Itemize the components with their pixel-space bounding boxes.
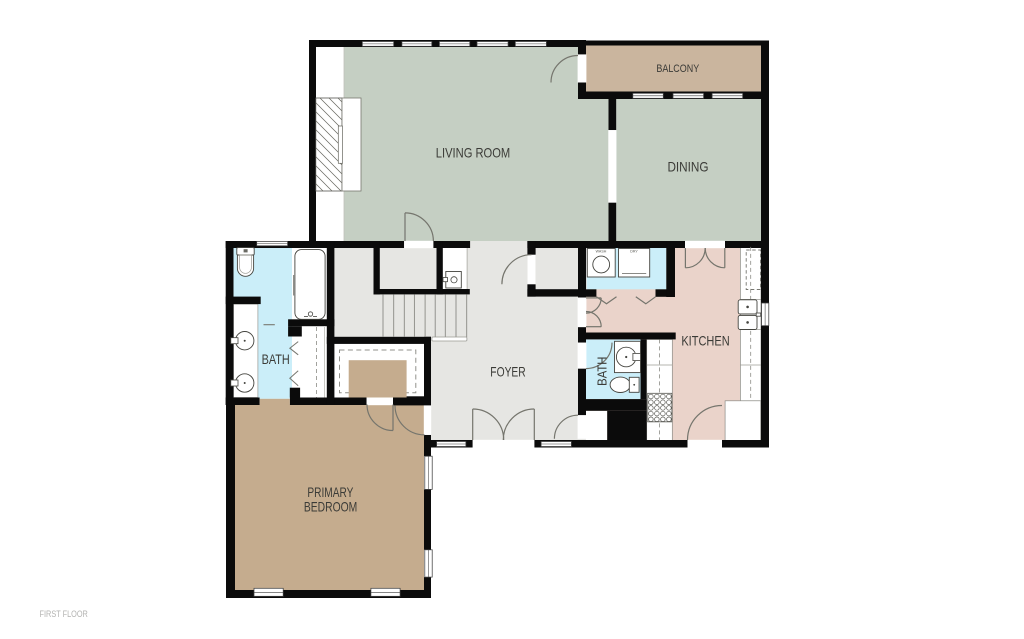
svg-text:FIRST FLOOR: FIRST FLOOR xyxy=(40,609,89,619)
svg-text:BALCONY: BALCONY xyxy=(656,63,699,75)
svg-text:BEDROOM: BEDROOM xyxy=(304,500,357,515)
svg-text:KITCHEN: KITCHEN xyxy=(681,333,729,348)
svg-text:WASH: WASH xyxy=(596,249,607,253)
svg-text:PRIMARY: PRIMARY xyxy=(307,485,353,500)
svg-text:FOYER: FOYER xyxy=(490,364,525,379)
svg-text:DINING: DINING xyxy=(667,159,708,174)
svg-text:BATH: BATH xyxy=(595,357,610,386)
svg-text:DRY: DRY xyxy=(630,249,638,253)
svg-text:BATH: BATH xyxy=(262,352,290,367)
svg-text:LIVING ROOM: LIVING ROOM xyxy=(436,145,511,160)
